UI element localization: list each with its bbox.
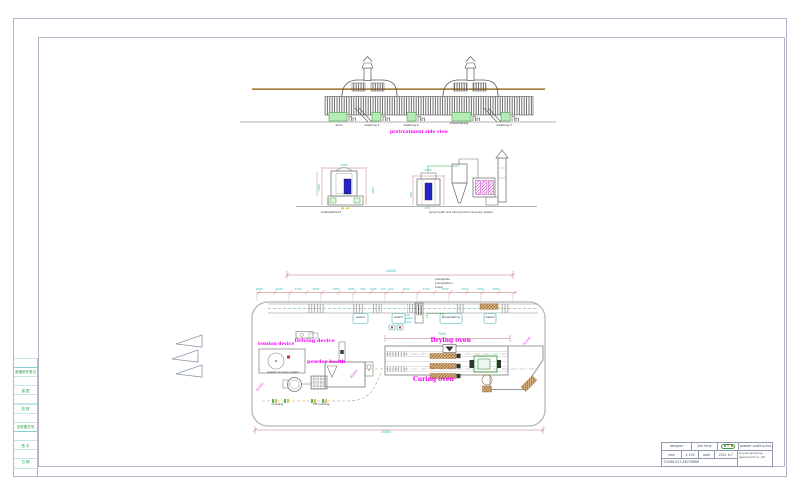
elevation-label-pretreatment: pretreatment — [321, 211, 341, 214]
dim-chain-value: 1500 — [403, 288, 410, 291]
scale-label: rate — [662, 451, 682, 458]
pretreatment-side-view-linework — [240, 57, 556, 123]
oven-dim: 7000 — [438, 333, 446, 337]
dim-chain-value: 1443 — [370, 288, 377, 291]
dim-chain-value: 900 — [388, 288, 393, 291]
frame-table-row-label: 校 核 — [13, 408, 38, 412]
elevation-label-spray-booth: spray booth and monocyclone recovery sys… — [429, 211, 493, 214]
frame-table-row-label: 旧底图总号 — [13, 426, 38, 430]
company-logo-icon — [721, 444, 735, 450]
elevation-linework — [296, 150, 537, 209]
frame-table-row-label: 日 期 — [13, 461, 38, 465]
dim-value: 150 — [424, 207, 429, 210]
label-tension-device: tension device — [258, 343, 294, 348]
title-block: designer jian feng powder coating line r… — [661, 442, 773, 467]
dim-chain-value: 1700 — [423, 288, 430, 291]
dim-chain-value: 2000 — [493, 288, 500, 291]
dim-chain-value: 1500 — [348, 288, 355, 291]
station-label: washing 3 — [496, 124, 511, 127]
logo-cell — [718, 443, 739, 451]
designer-value: jian feng — [692, 443, 718, 451]
dim-chain-value: 140 — [380, 288, 385, 291]
scale-value: 1:100 — [682, 451, 699, 458]
dim-value: 850 — [410, 192, 413, 197]
label-drying-oven: Drying oven — [431, 338, 471, 345]
date-value: 2021.6.7 — [715, 451, 737, 458]
dim-chain-value: 1500 — [256, 288, 263, 291]
station-label: phosphating — [450, 122, 469, 125]
plan-station-label: phosphating — [442, 316, 459, 319]
dim-value: 3350 — [372, 187, 375, 194]
cad-sheet: skim washing 1 washing 2 phosphating was… — [0, 0, 800, 493]
label-off-loading: Off loading — [313, 403, 329, 406]
dim-chain-value: 1700 — [295, 288, 302, 291]
plan-station-label: wash2 — [394, 316, 403, 319]
dim-chain-value: 1700 — [477, 288, 484, 291]
company-name: xinyue spraying equipment co.,ltd — [738, 451, 772, 465]
dim-chain-value: 1450 — [333, 288, 340, 291]
station-label: skim — [335, 124, 342, 127]
label-driving-device: Driving device — [295, 339, 335, 345]
dim-chain-value: 1500 — [462, 288, 469, 291]
plan-view-linework — [172, 271, 545, 434]
frame-table-row-label: 借通用件登记 — [13, 371, 38, 375]
dim-value: 1500 — [424, 169, 431, 172]
company-name-line: equipment co.,ltd — [739, 456, 771, 460]
dim-chain-value: 2220 — [276, 288, 283, 291]
view-title-pretreatment-side: pretreatment side view — [390, 131, 448, 136]
frame-table-row-label: 签 字 — [13, 445, 38, 449]
station-label: washing 2 — [403, 124, 418, 127]
hot-tank-note-line: tank — [405, 321, 411, 324]
label-powder-recovery: powder recovery system — [267, 372, 299, 375]
label-curing-oven: Curing oven — [413, 377, 454, 384]
cad-linework — [0, 0, 800, 493]
frame-table-row-label: 描 图 — [13, 390, 38, 394]
dim-chain-value: 2000 — [313, 288, 320, 291]
dim-chain-value: 980 — [360, 288, 365, 291]
overall-dim-bottom: 20000 — [381, 431, 391, 435]
phone-number: T:0086-523-88759666 — [662, 459, 737, 466]
dim-chain-value: 1500 — [442, 288, 449, 291]
label-powder-booth: powder booth — [307, 360, 345, 366]
dim-value: 2250 — [340, 164, 347, 167]
dim-value: 950 — [327, 199, 330, 204]
label-loading: Loading — [272, 403, 284, 406]
plan-station-label: wash3 — [485, 316, 494, 319]
overall-dim-top: 24050 — [386, 270, 396, 274]
dim-value: 1500 — [318, 184, 321, 191]
product-name: powder coating line — [739, 443, 772, 451]
designer-label: designer — [662, 443, 692, 451]
station-label: washing 1 — [364, 124, 379, 127]
date-label: date — [699, 451, 715, 458]
plan-station-label: wash1 — [356, 316, 365, 319]
